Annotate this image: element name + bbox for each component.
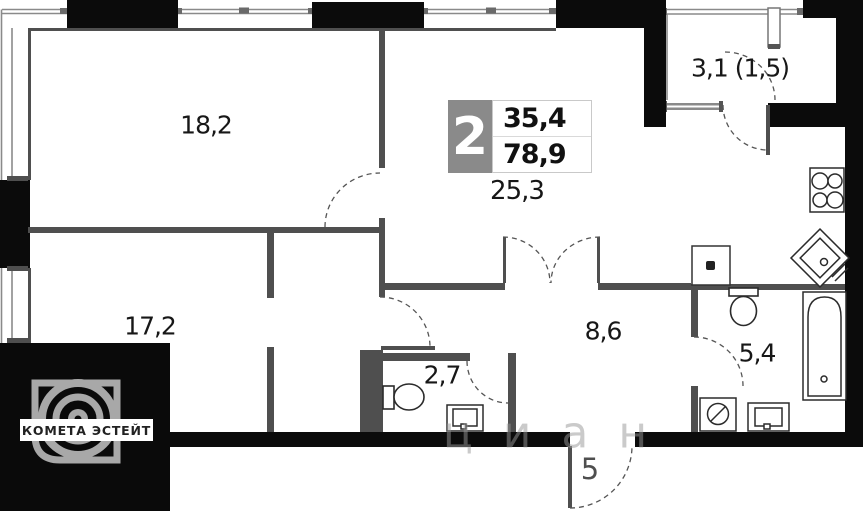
double-door-arc-left — [503, 237, 550, 283]
room-label-hallway: 8,6 — [585, 317, 622, 346]
rooms-count-badge: 2 — [448, 100, 492, 173]
area-upper-value: 35,4 — [493, 101, 591, 137]
window-lines — [2, 10, 804, 344]
watermark-text: циан — [443, 408, 677, 459]
washing-machine-icon — [700, 398, 736, 431]
area-values-box: 35,4 78,9 — [492, 100, 592, 173]
stove-icon — [810, 168, 844, 212]
bathtub-icon — [803, 292, 846, 400]
door-arc-balcony-outer — [723, 105, 768, 150]
door-arc-bathroom — [694, 337, 743, 386]
agency-name: КОМЕТА ЭСТЕЙТ — [22, 423, 151, 438]
kitchen-sink-icon — [791, 229, 849, 287]
door-arc-wc — [467, 361, 508, 403]
floor-plan-page: циан 18,2 17,2 8,6 2,7 5,4 3,1 (1,5) 5 2… — [0, 0, 863, 511]
agency-name-banner: КОМЕТА ЭСТЕЙТ — [20, 419, 153, 441]
entrance-number-label: 5 — [581, 452, 599, 486]
balcony-window-post — [768, 8, 780, 49]
room-label-bedroom-top: 18,2 — [180, 111, 232, 140]
room-label-bathroom: 5,4 — [739, 339, 776, 368]
area-lower-value: 78,9 — [493, 137, 591, 172]
room-label-balcony: 3,1 (1,5) — [691, 54, 789, 83]
vent-shaft-icon — [692, 246, 730, 285]
apartment-badge: 2 35,4 78,9 — [448, 100, 592, 173]
agency-logo-block: КОМЕТА ЭСТЕЙТ — [0, 343, 170, 511]
door-arc-bedroom-left — [380, 297, 430, 347]
room-label-kitchen-living: 25,3 — [490, 176, 544, 206]
room-label-wc: 2,7 — [424, 361, 461, 390]
toilet-icon-bathroom — [729, 288, 758, 326]
door-arc-bedroom-top — [325, 173, 380, 227]
toilet-icon-wc — [383, 384, 424, 410]
basin-icon-bathroom — [748, 403, 789, 431]
room-label-bedroom-left: 17,2 — [124, 312, 176, 341]
double-door-arc-right — [551, 237, 600, 283]
balcony-rail — [663, 101, 723, 112]
